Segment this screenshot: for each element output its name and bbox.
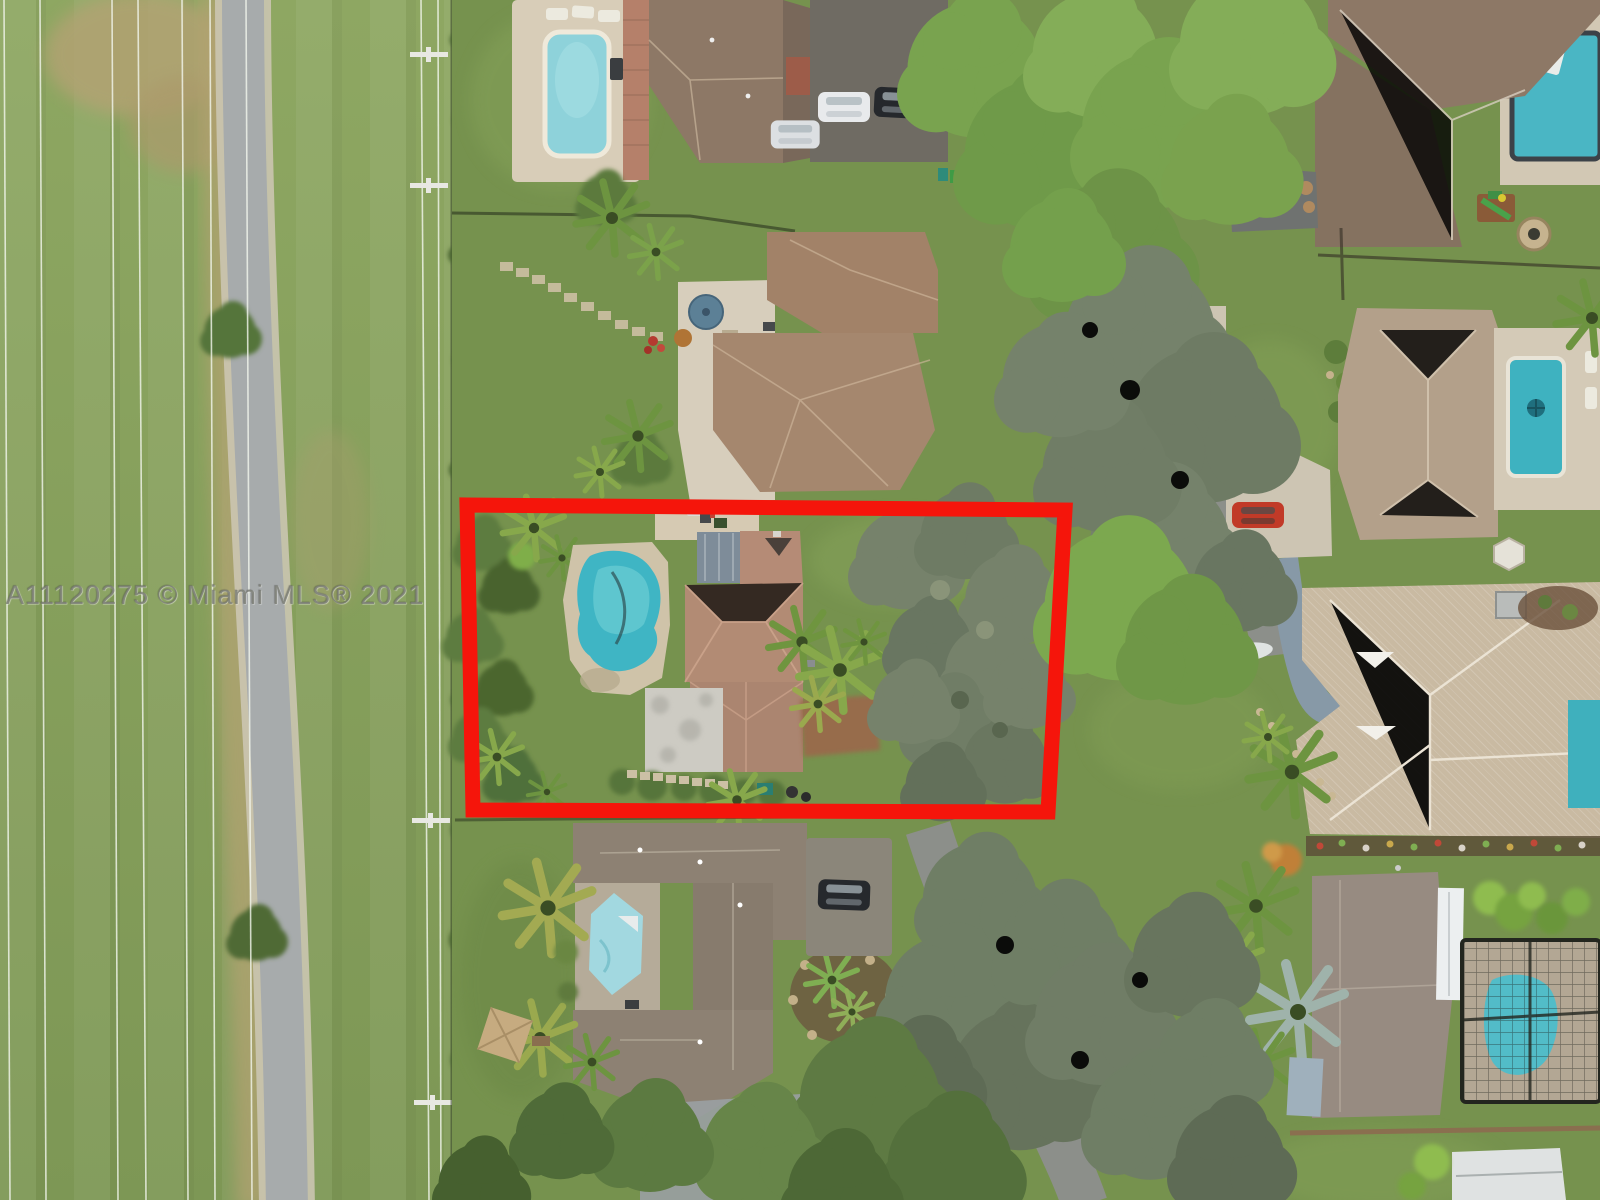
playset xyxy=(1477,191,1515,222)
lounger xyxy=(1585,387,1597,409)
lounger xyxy=(546,8,568,20)
aerial-scene xyxy=(0,0,1600,1200)
gazebo-roof xyxy=(1494,538,1524,570)
grill xyxy=(625,1000,639,1009)
chimney xyxy=(773,531,781,537)
clay-pot xyxy=(1303,201,1315,213)
white-car xyxy=(818,92,870,122)
lounger xyxy=(572,5,595,19)
brick-walk xyxy=(623,0,649,180)
aerial-photo-listing: A11120275 © Miami MLS® 2021 xyxy=(0,0,1600,1200)
roof-vent xyxy=(1395,865,1401,871)
house-roof-lower xyxy=(713,333,935,492)
pool-sliver xyxy=(1568,700,1600,808)
red-car xyxy=(1232,502,1284,528)
dark-suv xyxy=(818,879,871,911)
white-car xyxy=(771,120,820,148)
blue-pavers xyxy=(1287,1057,1324,1117)
grill xyxy=(763,322,775,331)
pool-enclosure xyxy=(1462,940,1600,1102)
lounger xyxy=(598,10,620,22)
grill xyxy=(610,58,623,80)
bin xyxy=(938,168,948,181)
mulch-bed xyxy=(1518,586,1598,630)
picnic-table xyxy=(532,1036,550,1046)
